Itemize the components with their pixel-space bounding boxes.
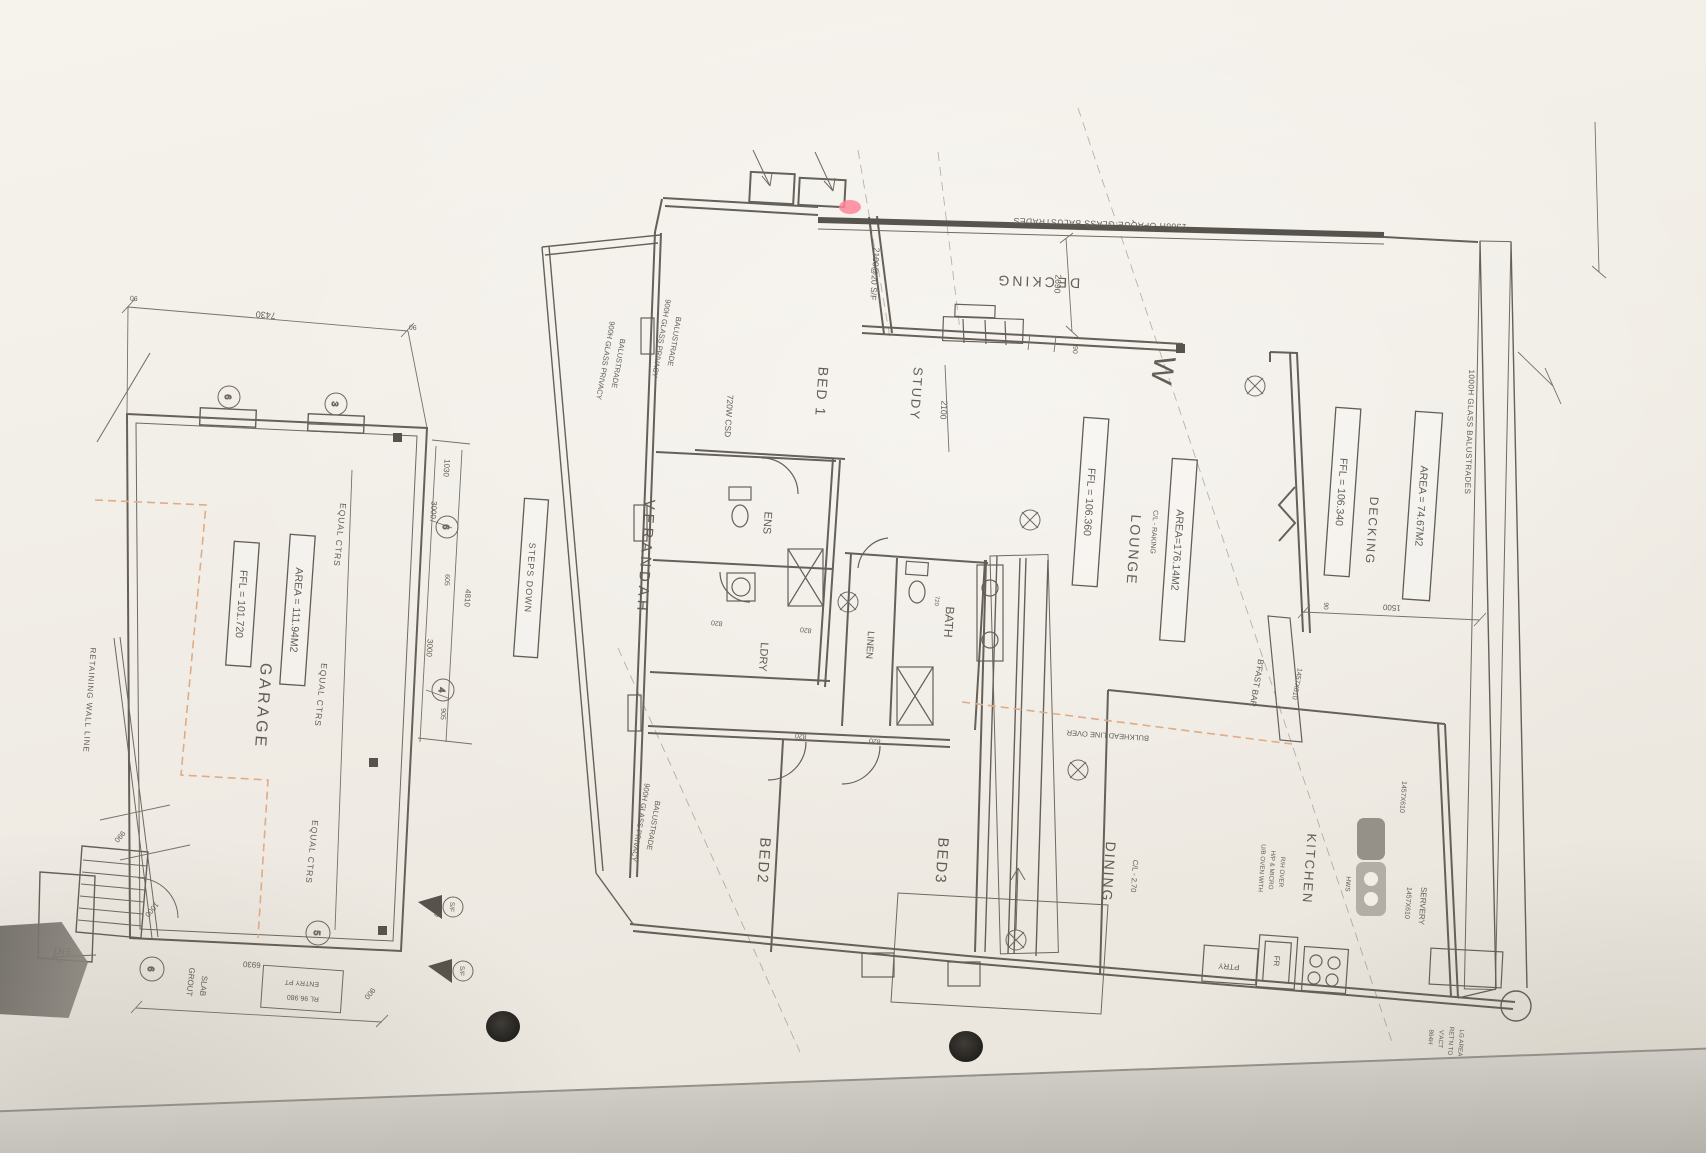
oven-note: U/B OVEN WITH H/P & MICRO R/H OVER [1256,844,1286,893]
hole-punch-dot [949,1031,983,1062]
garage-inner-wall [136,423,417,941]
window-1457-servery: 1457X610 [1403,887,1412,919]
garage-top-dimension: 7430 90 90 [122,294,427,428]
dining-ceiling-label: C/L - 2.70 [1129,859,1140,892]
equal-ctrs-1: EQUAL CTRS [332,503,349,568]
setout-note-1: ENTRY PT [284,978,319,987]
door-820-2: 820 [800,625,812,633]
deck-balustrade-strip [1458,122,1606,1021]
tag-4: 4 [437,687,447,693]
retaining-wall-line [114,637,158,938]
dim-900: 900 [362,986,377,1001]
pink-marker-highlight [839,200,861,214]
bath-label: BATH [941,606,957,638]
garage-room-label: GARAGE [251,662,274,749]
verandah-label: VERANDAH [633,499,658,615]
dim-90b: 90 [1322,602,1330,610]
csd-label: 720W CSD [723,394,736,437]
light-symbols [838,376,1265,950]
corner-note-2: V'ACT [1436,1030,1444,1049]
tag-6: 6 [223,394,233,400]
bed2-label: BED2 [753,837,773,885]
oven-note-1: U/B OVEN WITH [1256,844,1266,893]
garage-area-box: AREA = 111.94M2 [280,534,315,685]
bath-fixtures [897,561,1003,725]
hole-punch-dot [486,1011,520,1042]
linen-label: LINEN [863,631,876,660]
dim-3000b: 3000 [424,639,434,658]
ptry-label: PTRY [1217,961,1239,972]
dim-1500: 1500 [1382,602,1401,612]
dim-4810: 4810 [462,589,472,608]
wall-mark [393,433,402,442]
ens-label: ENS [760,511,774,534]
door-820-1: 820 [711,618,723,626]
crease-lines [618,108,1392,1052]
oven-note-3: R/H OVER [1277,857,1286,888]
dim-1000b: 1000 [143,900,161,919]
ffl-deck-box: FFL = 106.340 [1324,407,1361,576]
sf-label-2: S/F [458,966,466,977]
corner-note-1: 864H [1426,1029,1434,1045]
dim-90-left: 90 [130,294,138,302]
grout-slab-label-2: SLAB [198,975,209,996]
lounge-ceiling-label: C/L - RAKING [1148,510,1158,554]
steps-down-box: STEPS DOWN [514,498,549,657]
opaque-balustrade-label: 1500H OPAQUE GLASS BALUSTRADES [1013,216,1187,232]
skylight-symbols [749,150,845,207]
tag-5: 5 [312,930,322,936]
sink-and-hws: HWS [1343,818,1386,916]
area-deck-box: AREA = 74.67M2 [1402,411,1442,600]
lounge-label: LOUNGE [1124,514,1145,586]
corner-note-4: LG AREA [1456,1029,1465,1057]
retaining-wall-label: RETAINING WALL LINE [81,647,97,753]
leader-line [97,353,150,442]
main-floor-plan: STEPS DOWN VERANDAH 900H GLASS PRIVACY B… [514,108,1606,1057]
equal-ctrs-3: EQUAL CTRS [304,820,321,885]
glass-balustrade-label: 1000H GLASS BALUSTRADES [1463,369,1476,494]
sf-spec-label: 2100@20 S/F [868,247,882,300]
garage-bottom-annotations: 6930 900 GROUT SLAB ENTRY PT RL 96.980 [131,959,388,1027]
w-window-mark: W [1144,353,1182,387]
study-label: STUDY [907,367,926,422]
dim-2100: 2100 [938,400,949,420]
door-820-3: 820 [795,731,807,739]
sf-label-1: S/F [448,902,456,913]
equal-ctrs-2: EQUAL CTRS [313,663,330,728]
decking-side-label: DECKING [1363,496,1382,565]
garage-outer-wall [127,414,427,951]
dim-7430: 7430 [255,309,276,321]
wall-mark [369,758,378,767]
bed3-label: BED3 [931,837,951,885]
setout-note-2: RL 96.980 [287,993,320,1002]
dim-990: 990 [112,829,127,844]
sf-flags: S/F S/F [418,895,473,983]
kitchen-label: KITCHEN [1300,833,1320,905]
door-dims: 820 820 820 820 [711,618,881,744]
fr-label: FR [1272,955,1282,966]
tag-6b: 6 [441,524,451,530]
dim-605: 605 [443,574,451,586]
oven-note-2: H/P & MICRO [1267,850,1277,890]
dim-90-right: 90 [409,323,417,331]
ffl-house-box: FFL = 106.360 [1072,417,1109,586]
dim-905: 905 [439,708,447,720]
dim-3000: 3000 [428,501,438,520]
hws-label: HWS [1343,876,1351,892]
area-house-box: AREA=176.14M2 [1160,458,1198,641]
tag-3: 3 [330,401,340,407]
garage-ffl-box: FFL = 101.720 [226,541,260,666]
corner-note-3: RET'N TO [1446,1026,1455,1055]
dim-90-deck: 90 [1071,346,1079,354]
corner-note: 864H V'ACT RET'N TO LG AREA [1426,1026,1464,1057]
zigzag-window-mark [1279,487,1295,541]
bed1-label: BED 1 [812,366,831,417]
bfast-bar-label: B'FAST BAR [1248,658,1266,707]
door-820-4: 820 [869,736,881,744]
dim-720: 720 [933,596,940,607]
garage-plan: 7430 90 90 RETAINING WALL LINE FFL = 101… [38,294,473,1027]
dim-2690: 2690 [1052,274,1063,294]
servery-window [1429,948,1503,988]
dim-1030: 1030 [441,459,451,478]
ldry-label: LDRY [756,642,770,673]
window-1457-right: 1457X610 [1398,781,1407,813]
plan-drawing: 7430 90 90 RETAINING WALL LINE FFL = 101… [0,0,1706,1153]
tag-6c: 6 [146,966,156,972]
dim-6930: 6930 [242,959,261,969]
privacy-note-1a: 900H GLASS PRIVACY [594,321,617,401]
ens-fixtures [727,487,823,606]
window-bed3 [948,962,980,986]
window-bed2 [862,953,894,977]
staircase [985,554,1058,956]
wall-mark [378,926,387,935]
servery-label: SERVERY [1417,887,1429,926]
floor-plan-photo: 7430 90 90 RETAINING WALL LINE FFL = 101… [0,0,1706,1153]
window-1457-bfast: 1457X610 [1290,667,1302,700]
decking-top-label: DECKING [995,273,1080,292]
dining-label: DINING [1099,841,1119,903]
grout-slab-label-1: GROUT [185,967,197,997]
